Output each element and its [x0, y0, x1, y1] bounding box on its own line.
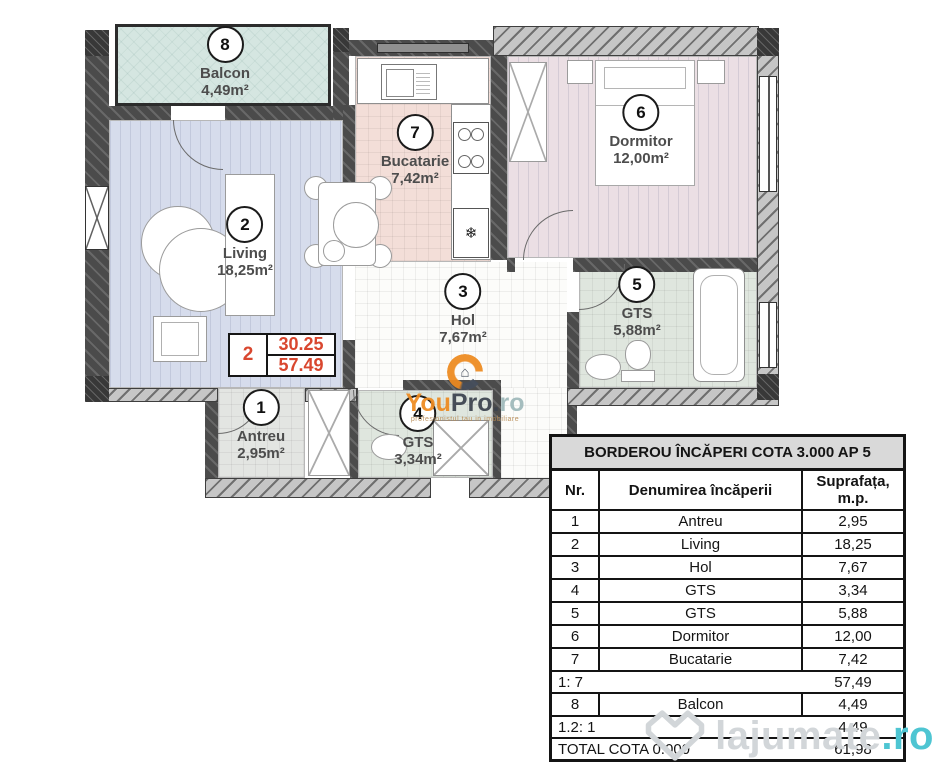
wall-dormitor-top	[493, 26, 759, 56]
window-x-icon	[86, 187, 108, 249]
cell-name: Living	[600, 534, 803, 555]
cell-area: 2,95	[803, 511, 903, 532]
shower-x-icon	[434, 421, 488, 475]
cell-area: 18,25	[803, 534, 903, 555]
antreu-wardrobe	[308, 390, 350, 476]
header-nr: Nr.	[552, 471, 600, 509]
annotation-value-bottom: 57.49	[268, 356, 334, 375]
window-dormitor-icon	[759, 76, 777, 192]
wall-corner-bottomright	[757, 374, 779, 400]
subtotal-label: 1: 7	[552, 672, 803, 692]
table-row: 3 Hol 7,67	[552, 557, 903, 580]
cell-name: Antreu	[600, 511, 803, 532]
dormitor-closet	[509, 62, 547, 162]
total-row: TOTAL COTA 0.000 61,98	[552, 739, 903, 759]
cell-area: 3,34	[803, 580, 903, 601]
wall-hol-gts	[567, 312, 579, 388]
total-label: TOTAL COTA 0.000	[552, 739, 803, 759]
window-glass-line	[768, 303, 770, 367]
wall-corner-bottomleft	[85, 376, 109, 402]
area-annotation-box: 2 30.25 57.49	[228, 333, 336, 377]
cell-name: Balcon	[600, 694, 803, 715]
cell-nr: 5	[552, 603, 600, 624]
table-header-row: Nr. Denumirea încăperii Suprafața, m.p.	[552, 471, 903, 511]
annotation-room-number: 2	[230, 335, 268, 375]
cell-nr: 2	[552, 534, 600, 555]
subtotal-interior-row: 1: 7 57,49	[552, 672, 903, 694]
wall-gts-mic-top	[403, 380, 501, 390]
bed	[595, 60, 695, 186]
wall-gts-mare-bottom	[567, 388, 779, 406]
wall-balcony-living-right	[225, 106, 347, 120]
burner	[471, 155, 484, 168]
table-row: 2 Living 18,25	[552, 534, 903, 557]
cell-area: 7,42	[803, 649, 903, 670]
cell-nr: 3	[552, 557, 600, 578]
page: { "plan": { "rooms": [ {"id":"balcon","n…	[0, 0, 948, 768]
table-row: 5 GTS 5,88	[552, 603, 903, 626]
cell-name: GTS	[600, 603, 803, 624]
sink-drainer	[416, 70, 430, 94]
cell-nr: 1	[552, 511, 600, 532]
nightstand	[697, 60, 725, 84]
window-gts-icon	[759, 302, 777, 368]
cell-nr: 6	[552, 626, 600, 647]
room-hol	[355, 262, 567, 388]
nightstand	[567, 60, 593, 84]
wall-corner-topright	[757, 28, 779, 56]
stove	[453, 122, 489, 174]
table-row: 1 Antreu 2,95	[552, 511, 903, 534]
wall-bottom-left	[205, 478, 431, 498]
cell-area: 4,49	[803, 694, 903, 715]
subtotal-label: 1.2: 1	[552, 717, 803, 737]
sink-basin	[386, 69, 414, 97]
burner	[471, 128, 484, 141]
borderou-table: BORDEROU ÎNCĂPERI COTA 3.000 AP 5 Nr. De…	[549, 434, 906, 762]
cell-area: 5,88	[803, 603, 903, 624]
table-row: 6 Dormitor 12,00	[552, 626, 903, 649]
cell-nr: 8	[552, 694, 600, 715]
header-area: Suprafața, m.p.	[803, 471, 903, 509]
burner	[458, 128, 471, 141]
gts-mic-sink	[371, 434, 407, 460]
wall-gts-mic-right	[493, 388, 501, 478]
table-row: 4 GTS 3,34	[552, 580, 903, 603]
cell-name: Hol	[600, 557, 803, 578]
cell-area: 12,00	[803, 626, 903, 647]
window-kitchen-icon	[377, 43, 469, 53]
subtotal-balcony-row: 1.2: 1 4,49	[552, 717, 903, 739]
wall-living-hol-lower	[343, 340, 355, 388]
fridge: ❄	[453, 208, 489, 258]
table-row: 7 Bucatarie 7,42	[552, 649, 903, 672]
cell-name: Bucatarie	[600, 649, 803, 670]
annotation-value-top: 30.25	[268, 335, 334, 356]
bed-pillow	[604, 67, 686, 89]
toilet-bowl	[625, 340, 651, 370]
wall-corner-balcony	[333, 28, 349, 52]
wall-kitchen-dormitor	[491, 56, 507, 260]
wall-balcony-living-left	[109, 106, 171, 120]
bed-blanket-line	[596, 105, 694, 106]
cell-nr: 7	[552, 649, 600, 670]
window-living-icon	[85, 186, 109, 250]
cell-area: 7,67	[803, 557, 903, 578]
bathtub	[693, 268, 745, 382]
header-name: Denumirea încăperii	[600, 471, 803, 509]
floor-plan: ❄ 8 Balcon 4,49m² 2	[85, 10, 780, 502]
shower	[433, 420, 489, 476]
subtotal-value: 57,49	[803, 672, 903, 692]
burner	[458, 155, 471, 168]
annotation-values: 30.25 57.49	[268, 335, 334, 375]
bathroom-sink	[585, 354, 621, 380]
wall-corner-topleft	[85, 30, 109, 56]
total-value: 61,98	[803, 739, 903, 759]
living-rug	[225, 174, 275, 316]
armchair-seat	[161, 322, 199, 356]
cell-name: GTS	[600, 580, 803, 601]
kitchen-chair	[323, 240, 345, 262]
kitchen-sink	[381, 64, 437, 100]
window-glass-line	[768, 77, 770, 191]
bathtub-inner	[700, 275, 738, 375]
room-balcon	[115, 24, 331, 106]
cell-nr: 4	[552, 580, 600, 601]
fridge-snowflake-icon: ❄	[465, 224, 478, 242]
armchair	[153, 316, 207, 362]
table-row-balcon: 8 Balcon 4,49	[552, 694, 903, 717]
closet-x-icon	[510, 63, 546, 161]
table-title: BORDEROU ÎNCĂPERI COTA 3.000 AP 5	[552, 437, 903, 471]
toilet-tank	[621, 370, 655, 382]
wall-dormitor-bottom-stub	[507, 258, 515, 272]
subtotal-value: 4,49	[803, 717, 903, 737]
wardrobe-x-icon	[309, 391, 349, 475]
cell-name: Dormitor	[600, 626, 803, 647]
wall-living-kitchen-upper	[343, 105, 355, 189]
